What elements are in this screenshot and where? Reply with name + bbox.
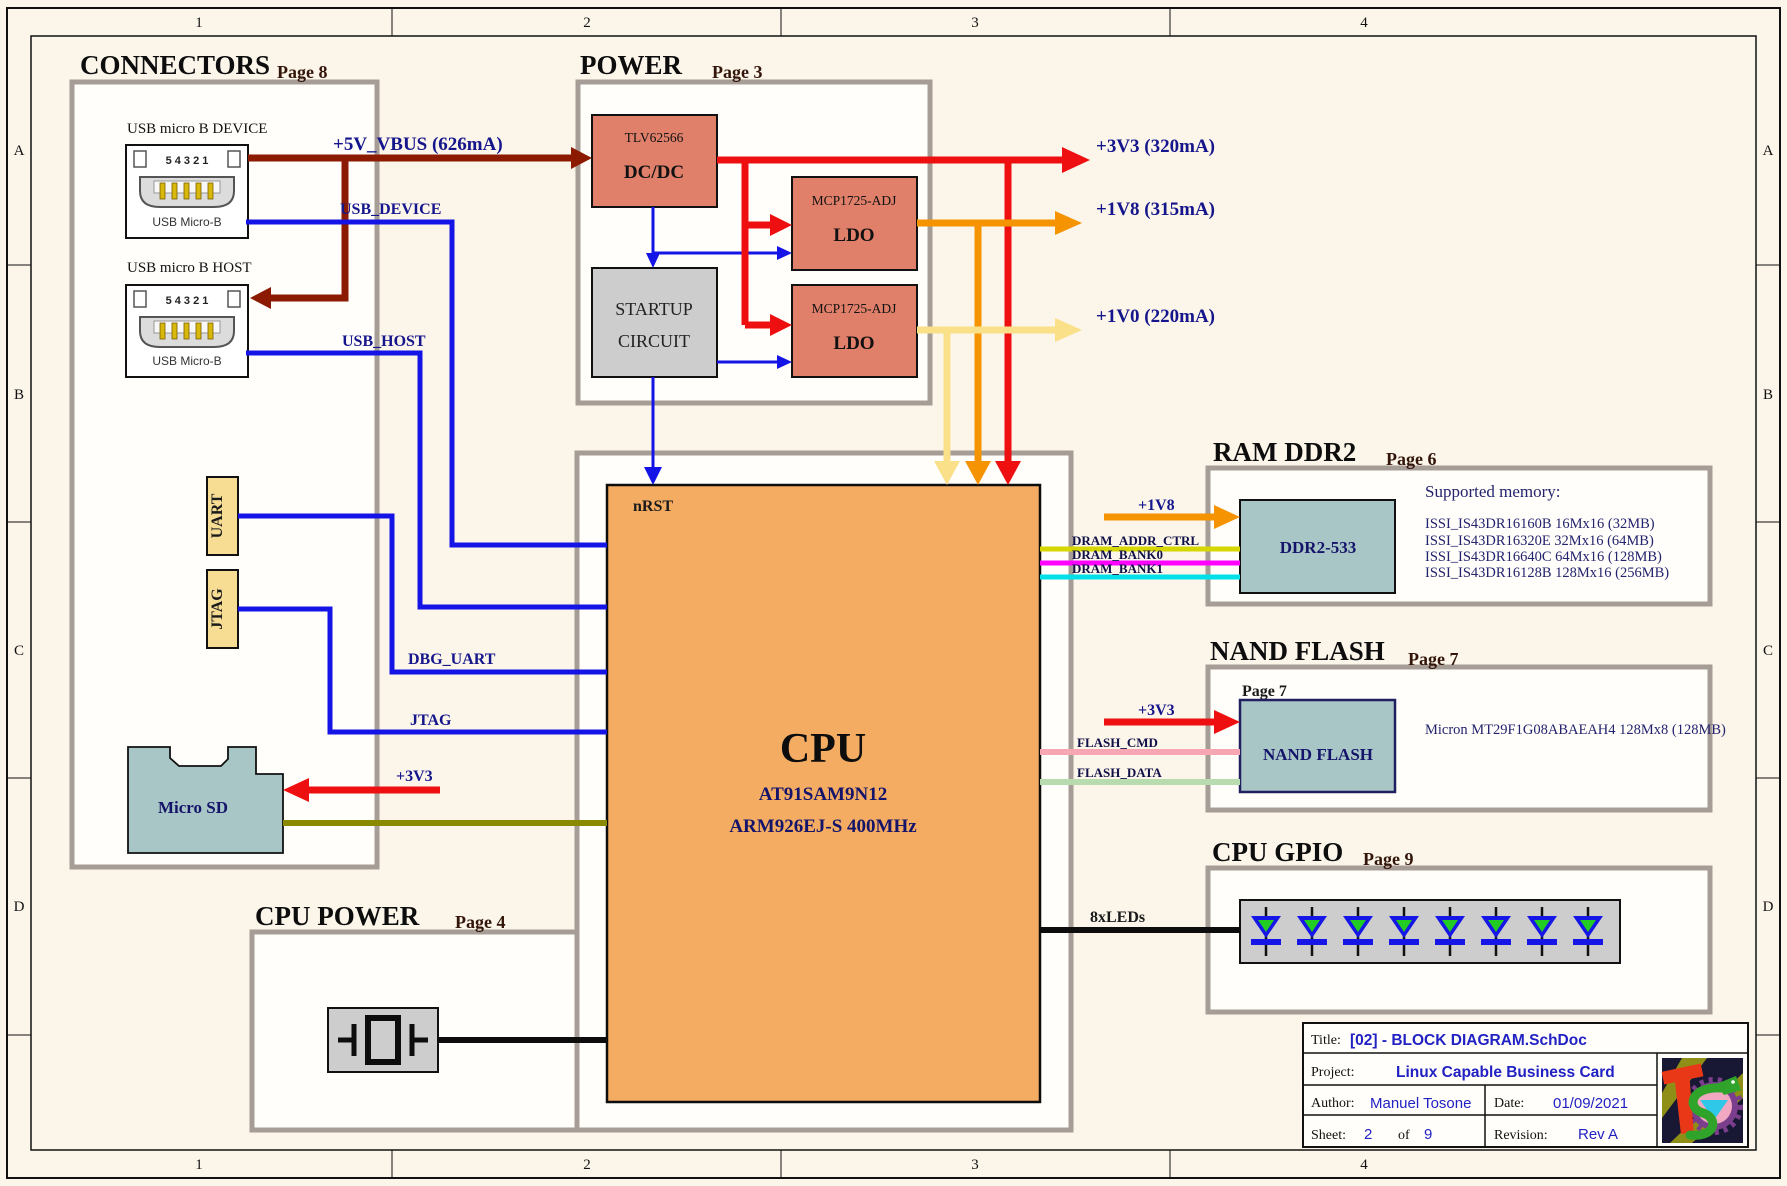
titleblock-date-label: Date: — [1494, 1096, 1524, 1111]
microsd-label: Micro SD — [158, 798, 228, 817]
frame-col-1-top: 1 — [195, 15, 203, 31]
connectors-title: CONNECTORS — [80, 50, 270, 80]
rail-1v0-label: +1V0 (220mA) — [1096, 306, 1215, 327]
nand-chip-label: NAND FLASH — [1263, 745, 1373, 764]
frame-row-c-right: C — [1763, 643, 1773, 659]
nand-inner-page: Page 7 — [1242, 683, 1287, 700]
usb-host-label: USB Micro-B — [152, 354, 221, 368]
frame-col-1-bottom: 1 — [195, 1157, 203, 1173]
frame-col-3-bottom: 3 — [971, 1157, 979, 1173]
ram-supported-3: ISSI_IS43DR16640C 64Mx16 (128MB) — [1425, 549, 1662, 565]
frame-col-2-bottom: 2 — [583, 1157, 591, 1173]
uart-header-label: UART — [209, 493, 226, 538]
ldo1-label: LDO — [833, 225, 874, 246]
nand-part: Micron MT29F1G08ABAEAH4 128Mx8 (128MB) — [1425, 722, 1726, 738]
startup-line1: STARTUP — [615, 299, 693, 319]
ldo2-block: MCP1725-ADJ LDO — [792, 285, 917, 377]
dcdc-block: TLV62566 DC/DC — [592, 115, 717, 207]
frame-row-b-right: B — [1763, 387, 1773, 403]
power-title: POWER — [580, 50, 683, 80]
titleblock-revision-label: Revision: — [1494, 1128, 1548, 1143]
frame-col-3-top: 3 — [971, 15, 979, 31]
cpu-name: CPU — [780, 726, 866, 772]
net-3v3-nand-label: +3V3 — [1138, 702, 1175, 719]
titleblock-sheet-num: 2 — [1364, 1126, 1372, 1143]
frame-row-d-right: D — [1763, 899, 1774, 915]
net-flash-cmd-label: FLASH_CMD — [1077, 735, 1158, 750]
ldo1-block: MCP1725-ADJ LDO — [792, 177, 917, 270]
gpio-title: CPU GPIO — [1212, 837, 1343, 867]
schematic-sheet: 1 2 3 4 1 2 3 4 A B C D A B C D CONNECTO… — [0, 0, 1787, 1186]
uart-header-block: UART — [207, 477, 238, 555]
jtag-header-block: JTAG — [207, 570, 238, 648]
gpio-page: Page 9 — [1363, 849, 1413, 869]
dcdc-part: TLV62566 — [625, 130, 684, 145]
frame-col-2-top: 2 — [583, 15, 591, 31]
net-jtag-label: JTAG — [410, 712, 452, 729]
titleblock-of-label: of — [1398, 1128, 1410, 1143]
cpu-part: AT91SAM9N12 — [759, 784, 887, 805]
cpu-power-title: CPU POWER — [255, 901, 420, 931]
net-dram-bank0-label: DRAM_BANK0 — [1072, 547, 1163, 562]
frame-row-a-right: A — [1763, 143, 1774, 159]
net-usb-device-label: USB_DEVICE — [340, 201, 441, 218]
net-usb-host-label: USB_HOST — [342, 333, 426, 350]
usb-host-pin-numbers: 5 4 3 2 1 — [166, 295, 209, 307]
titleblock-project-value: Linux Capable Business Card — [1396, 1064, 1615, 1081]
frame-col-4-bottom: 4 — [1360, 1157, 1368, 1173]
ram-supported-1: ISSI_IS43DR16160B 16Mx16 (32MB) — [1425, 516, 1655, 532]
ddr2-block: DDR2-533 — [1240, 500, 1395, 593]
cpu-power-page: Page 4 — [455, 912, 505, 932]
net-dram-bank1-label: DRAM_BANK1 — [1072, 561, 1163, 576]
startup-circuit-block: STARTUP CIRCUIT — [592, 268, 717, 377]
titleblock-author-label: Author: — [1311, 1096, 1355, 1111]
cpu-core: ARM926EJ-S 400MHz — [729, 816, 917, 837]
net-vbus-label: +5V_VBUS (626mA) — [333, 134, 503, 155]
usb-device-pin-numbers: 5 4 3 2 1 — [166, 155, 209, 167]
rail-1v8-label: +1V8 (315mA) — [1096, 199, 1215, 220]
net-leds-label: 8xLEDs — [1090, 909, 1145, 926]
net-dram-addr-label: DRAM_ADDR_CTRL — [1072, 533, 1199, 548]
cpu-nrst-pin: nRST — [633, 498, 673, 515]
rail-3v3-label: +3V3 (320mA) — [1096, 136, 1215, 157]
ldo2-part: MCP1725-ADJ — [812, 301, 897, 316]
ddr2-label: DDR2-533 — [1280, 538, 1357, 557]
net-flash-data-label: FLASH_DATA — [1077, 765, 1162, 780]
frame-row-d-left: D — [14, 899, 25, 915]
frame-row-b-left: B — [14, 387, 24, 403]
usb-device-label: USB Micro-B — [152, 215, 221, 229]
led-bar — [1240, 900, 1620, 963]
titleblock-title-label: Title: — [1311, 1033, 1341, 1048]
usb-host-heading: USB micro B HOST — [127, 260, 252, 276]
ram-supported-heading: Supported memory: — [1425, 482, 1561, 501]
crystal-block — [328, 1008, 438, 1072]
nand-chip-block: NAND FLASH — [1240, 700, 1395, 792]
titleblock-sheet-total: 9 — [1424, 1126, 1432, 1143]
titleblock-sheet-label: Sheet: — [1311, 1128, 1346, 1143]
connectors-page: Page 8 — [277, 62, 327, 82]
titleblock-title-value: [02] - BLOCK DIAGRAM.SchDoc — [1350, 1032, 1587, 1049]
net-3v3-sd-label: +3V3 — [396, 768, 433, 785]
usb-device-heading: USB micro B DEVICE — [127, 121, 267, 137]
frame-row-c-left: C — [14, 643, 24, 659]
frame-col-4-top: 4 — [1360, 15, 1368, 31]
ram-title: RAM DDR2 — [1213, 437, 1356, 467]
frame-row-a-left: A — [14, 143, 25, 159]
jtag-header-label: JTAG — [209, 588, 226, 630]
nand-title: NAND FLASH — [1210, 636, 1385, 666]
power-page: Page 3 — [712, 62, 762, 82]
net-dbg-uart-label: DBG_UART — [408, 651, 496, 668]
ldo1-part: MCP1725-ADJ — [812, 193, 897, 208]
title-block: Title: [02] - BLOCK DIAGRAM.SchDoc Proje… — [1303, 1023, 1748, 1147]
ram-page: Page 6 — [1386, 449, 1436, 469]
titleblock-author-value: Manuel Tosone — [1370, 1095, 1471, 1112]
nand-page: Page 7 — [1408, 649, 1458, 669]
titleblock-revision-value: Rev A — [1578, 1126, 1618, 1143]
ram-supported-2: ISSI_IS43DR16320E 32Mx16 (64MB) — [1425, 533, 1654, 549]
cpu-block: nRST CPU AT91SAM9N12 ARM926EJ-S 400MHz — [607, 485, 1040, 1102]
company-logo — [1662, 1058, 1743, 1143]
net-1v8-ram-label: +1V8 — [1138, 497, 1175, 514]
ram-supported-4: ISSI_IS43DR16128B 128Mx16 (256MB) — [1425, 565, 1669, 581]
titleblock-date-value: 01/09/2021 — [1553, 1095, 1628, 1112]
titleblock-project-label: Project: — [1311, 1065, 1355, 1080]
startup-line2: CIRCUIT — [618, 331, 690, 351]
dcdc-label: DC/DC — [624, 162, 684, 183]
ldo2-label: LDO — [833, 333, 874, 354]
